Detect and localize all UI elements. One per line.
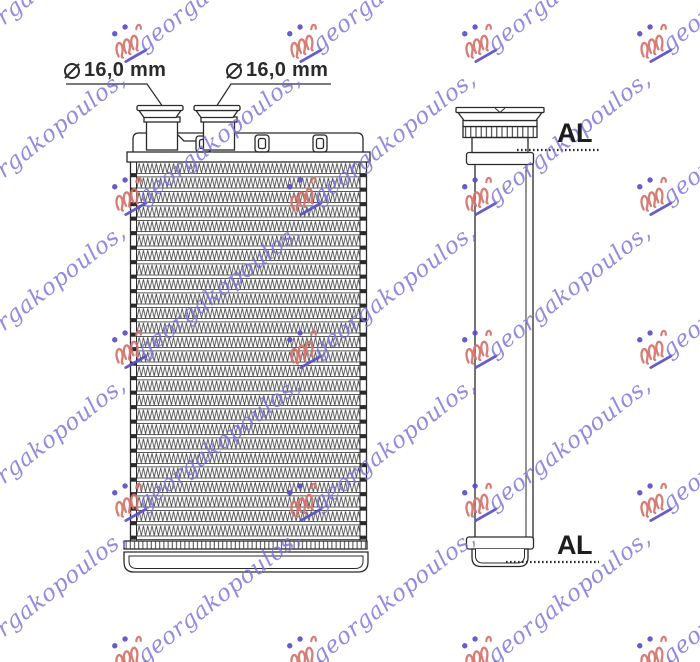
- inlet-pipe-2: [194, 106, 240, 151]
- technical-drawing: [0, 0, 700, 662]
- inlet-pipe-1: [137, 106, 183, 151]
- parts-catalog-drawing: georgakopoulos,georgakopoulos,georgakopo…: [0, 0, 700, 662]
- side-view: [456, 108, 599, 567]
- side-column: [475, 164, 533, 538]
- bottom-header-strip: [124, 541, 367, 549]
- bottom-tank: [124, 552, 368, 572]
- front-view: [66, 84, 370, 572]
- side-top-fitting: [456, 108, 544, 165]
- tank-tab: [255, 135, 269, 152]
- radiator-core: [131, 162, 367, 541]
- leader-line-1: [66, 84, 163, 107]
- tank-tab: [313, 135, 327, 152]
- leader-line-2: [216, 84, 331, 107]
